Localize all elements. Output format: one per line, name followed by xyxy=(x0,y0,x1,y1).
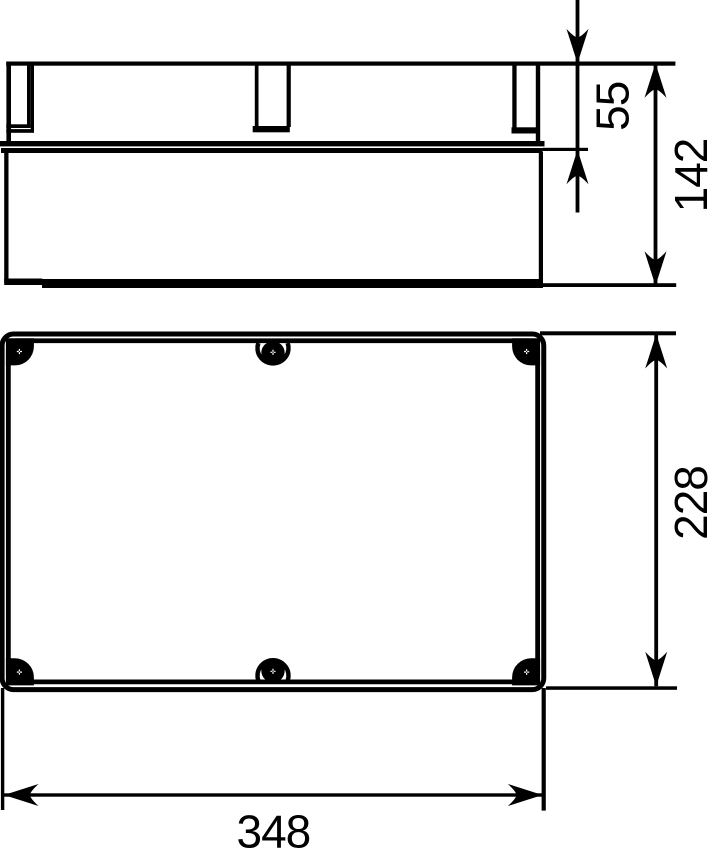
svg-text:142: 142 xyxy=(665,139,709,213)
svg-text:228: 228 xyxy=(665,466,709,540)
svg-text:55: 55 xyxy=(587,82,639,131)
svg-text:348: 348 xyxy=(237,806,311,850)
